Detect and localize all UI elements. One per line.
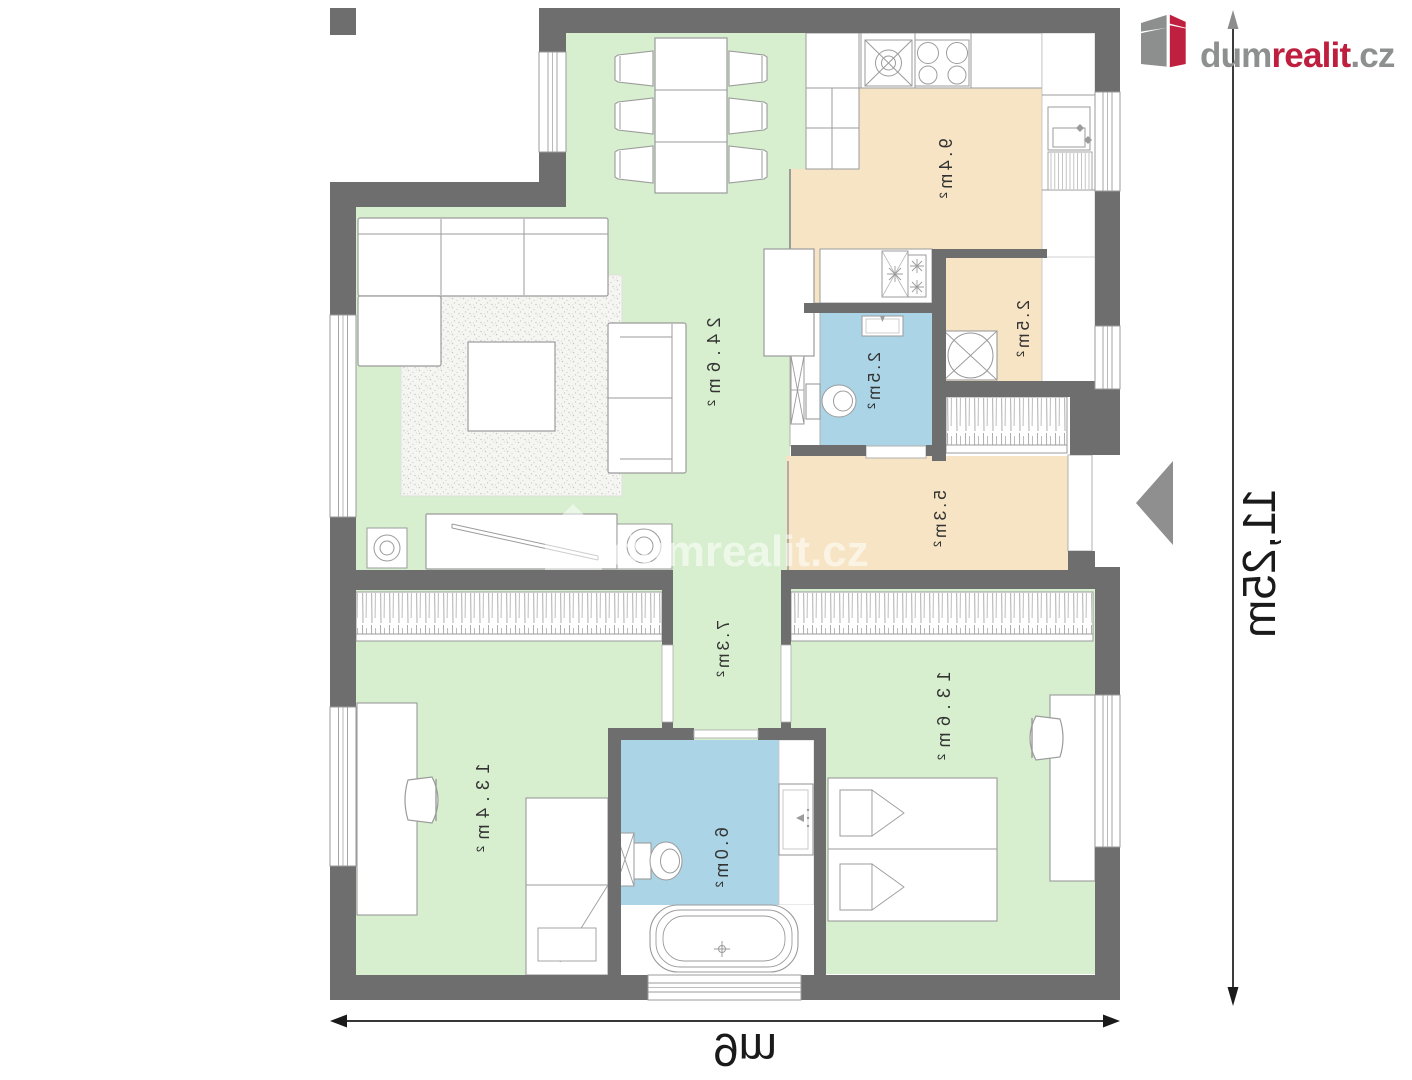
svg-text:dumrealit.cz: dumrealit.cz bbox=[612, 527, 869, 576]
svg-text:11,25m: 11,25m bbox=[1233, 488, 1285, 638]
svg-text:13.4m²: 13.4m² bbox=[473, 763, 493, 858]
svg-text:13.6m²: 13.6m² bbox=[934, 671, 954, 766]
svg-text:9.4m²: 9.4m² bbox=[936, 138, 956, 202]
svg-text:7.3m²: 7.3m² bbox=[713, 620, 733, 680]
svg-text:dumrealit.cz: dumrealit.cz bbox=[1200, 36, 1395, 75]
svg-text:2.5m²: 2.5m² bbox=[1013, 300, 1033, 360]
svg-text:9m: 9m bbox=[713, 1024, 777, 1076]
svg-text:5.3m²: 5.3m² bbox=[930, 490, 950, 550]
svg-text:2.5m²: 2.5m² bbox=[864, 352, 884, 412]
svg-text:24.6m²: 24.6m² bbox=[704, 317, 724, 412]
svg-text:6.0m²: 6.0m² bbox=[712, 827, 732, 891]
